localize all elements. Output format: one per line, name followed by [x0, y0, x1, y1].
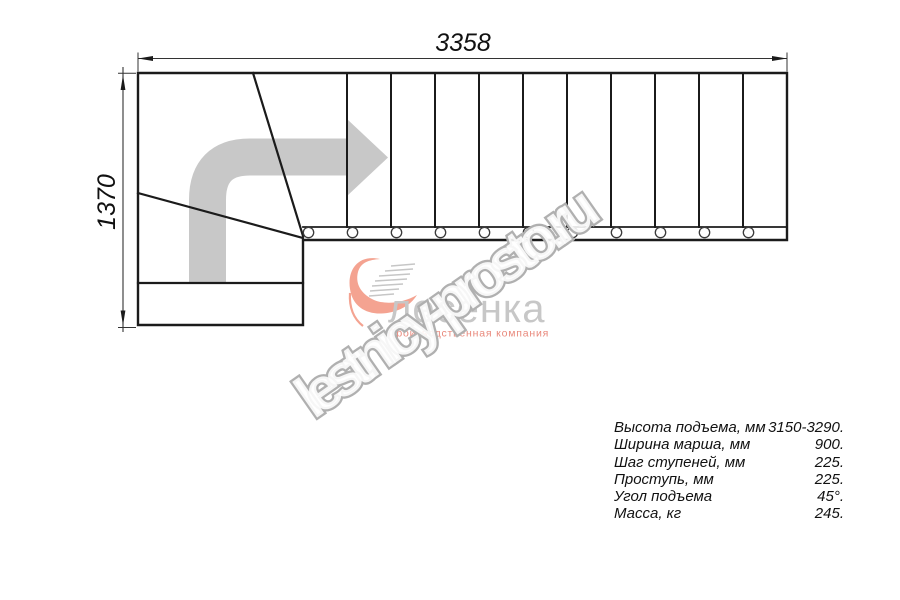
dimension-height: 1370 — [93, 67, 136, 332]
direction-arrow-head — [347, 119, 388, 196]
tread-bolt — [303, 227, 313, 237]
dimension-width-label: 3358 — [435, 29, 491, 57]
spec-row: Угол подъема45°. — [614, 488, 844, 505]
dimension-arrow-up — [121, 75, 126, 90]
spec-label: Масса, кг — [614, 505, 681, 522]
spec-value: 225. — [815, 454, 844, 471]
spec-row: Ширина марша, мм900. — [614, 436, 844, 453]
staircase-drawing-canvas: 3358 1370 лесенка Производственная компа… — [0, 0, 900, 600]
dimension-height-label: 1370 — [93, 174, 121, 230]
spec-table: Высота подъема, мм3150-3290.Ширина марша… — [614, 419, 844, 523]
spec-value: 225. — [815, 471, 844, 488]
tread-bolt — [391, 227, 401, 237]
watermark-text: lestnicy-prosto.ru — [283, 175, 608, 431]
spec-label: Проступь, мм — [614, 471, 714, 488]
direction-arrow — [208, 119, 389, 282]
spec-label: Высота подъема, мм — [614, 419, 766, 436]
tread-bolt — [743, 227, 753, 237]
spec-row: Высота подъема, мм3150-3290. — [614, 419, 844, 436]
dimension-arrow-down — [121, 311, 126, 326]
spec-row: Шаг ступеней, мм225. — [614, 454, 844, 471]
spec-value: 45°. — [817, 488, 844, 505]
direction-arrow-shaft — [208, 157, 349, 282]
tread-bolt — [655, 227, 665, 237]
dimension-arrow-right — [772, 56, 787, 61]
dimension-width: 3358 — [138, 29, 787, 72]
spec-label: Угол подъема — [614, 488, 712, 505]
dimension-arrow-left — [138, 56, 153, 61]
spec-value: 3150-3290. — [768, 419, 844, 436]
spec-value: 900. — [815, 436, 844, 453]
tread-bolt — [699, 227, 709, 237]
spec-row: Масса, кг245. — [614, 505, 844, 522]
tread-bolt — [611, 227, 621, 237]
spec-label: Шаг ступеней, мм — [614, 454, 745, 471]
spec-label: Ширина марша, мм — [614, 436, 750, 453]
tread-bolt — [435, 227, 445, 237]
tread-bolt — [347, 227, 357, 237]
spec-value: 245. — [815, 505, 844, 522]
spec-row: Проступь, мм225. — [614, 471, 844, 488]
